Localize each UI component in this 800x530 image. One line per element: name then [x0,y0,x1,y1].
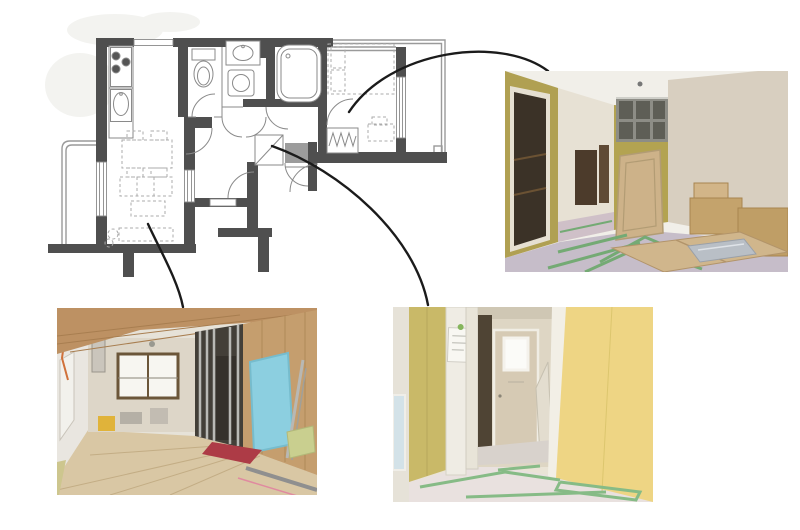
stove-burner [112,65,120,73]
photo-bottom-center [393,307,653,502]
ph3-left-window [393,395,405,470]
ph3-door-window [504,338,528,370]
coffee-table-icon [131,201,165,216]
shoe-cabinet-icon [255,135,283,165]
balcony-left-rail [62,141,96,249]
photo-bottom-left [57,308,317,502]
ph3-right-wall [556,307,653,502]
washing-machine-icon [228,70,254,96]
stove-burner [122,58,130,66]
balcony-left-rail-inner [66,145,96,249]
connector-lines [148,52,548,307]
connector-hallway-to-photo-bottom-center [272,146,428,305]
ph2-bucket [98,416,115,431]
ph1-cardboard-panel [616,150,663,240]
stove-burner [112,52,120,60]
sofa-icon [120,177,172,196]
ph2-blue-panel [250,353,293,452]
renovation-plan-composite [0,0,800,530]
ph1-left-doorway [510,86,550,252]
ph1-ceiling-mount [638,82,643,87]
ph3-corridor [478,307,556,467]
composite-canvas [0,0,800,530]
bathtub-icon [277,45,321,102]
ph3-door-frame [466,307,478,469]
ph1-transom-grid [616,98,668,142]
connector-living-to-photo-bottom-left [148,224,183,307]
bedroom-balcony-window [397,77,406,138]
living-left-window [97,162,107,216]
bed-icon [328,44,394,94]
ph2-window [118,354,178,398]
plant-icon [108,229,118,239]
desk-icon [368,117,394,141]
washbasin-icon [226,41,260,65]
hanger-closet-icon [327,128,358,153]
kitchen-top-window [134,40,173,46]
ph2-green-board [287,426,315,458]
hall-pocket-door [185,170,195,202]
hall-opening [210,199,236,206]
ph2-stud-wall [195,324,243,448]
photo-top-right [505,68,788,272]
toilet-icon [192,49,215,87]
kitchen-counter-icon [109,46,133,138]
tv-board-icon [119,228,173,241]
